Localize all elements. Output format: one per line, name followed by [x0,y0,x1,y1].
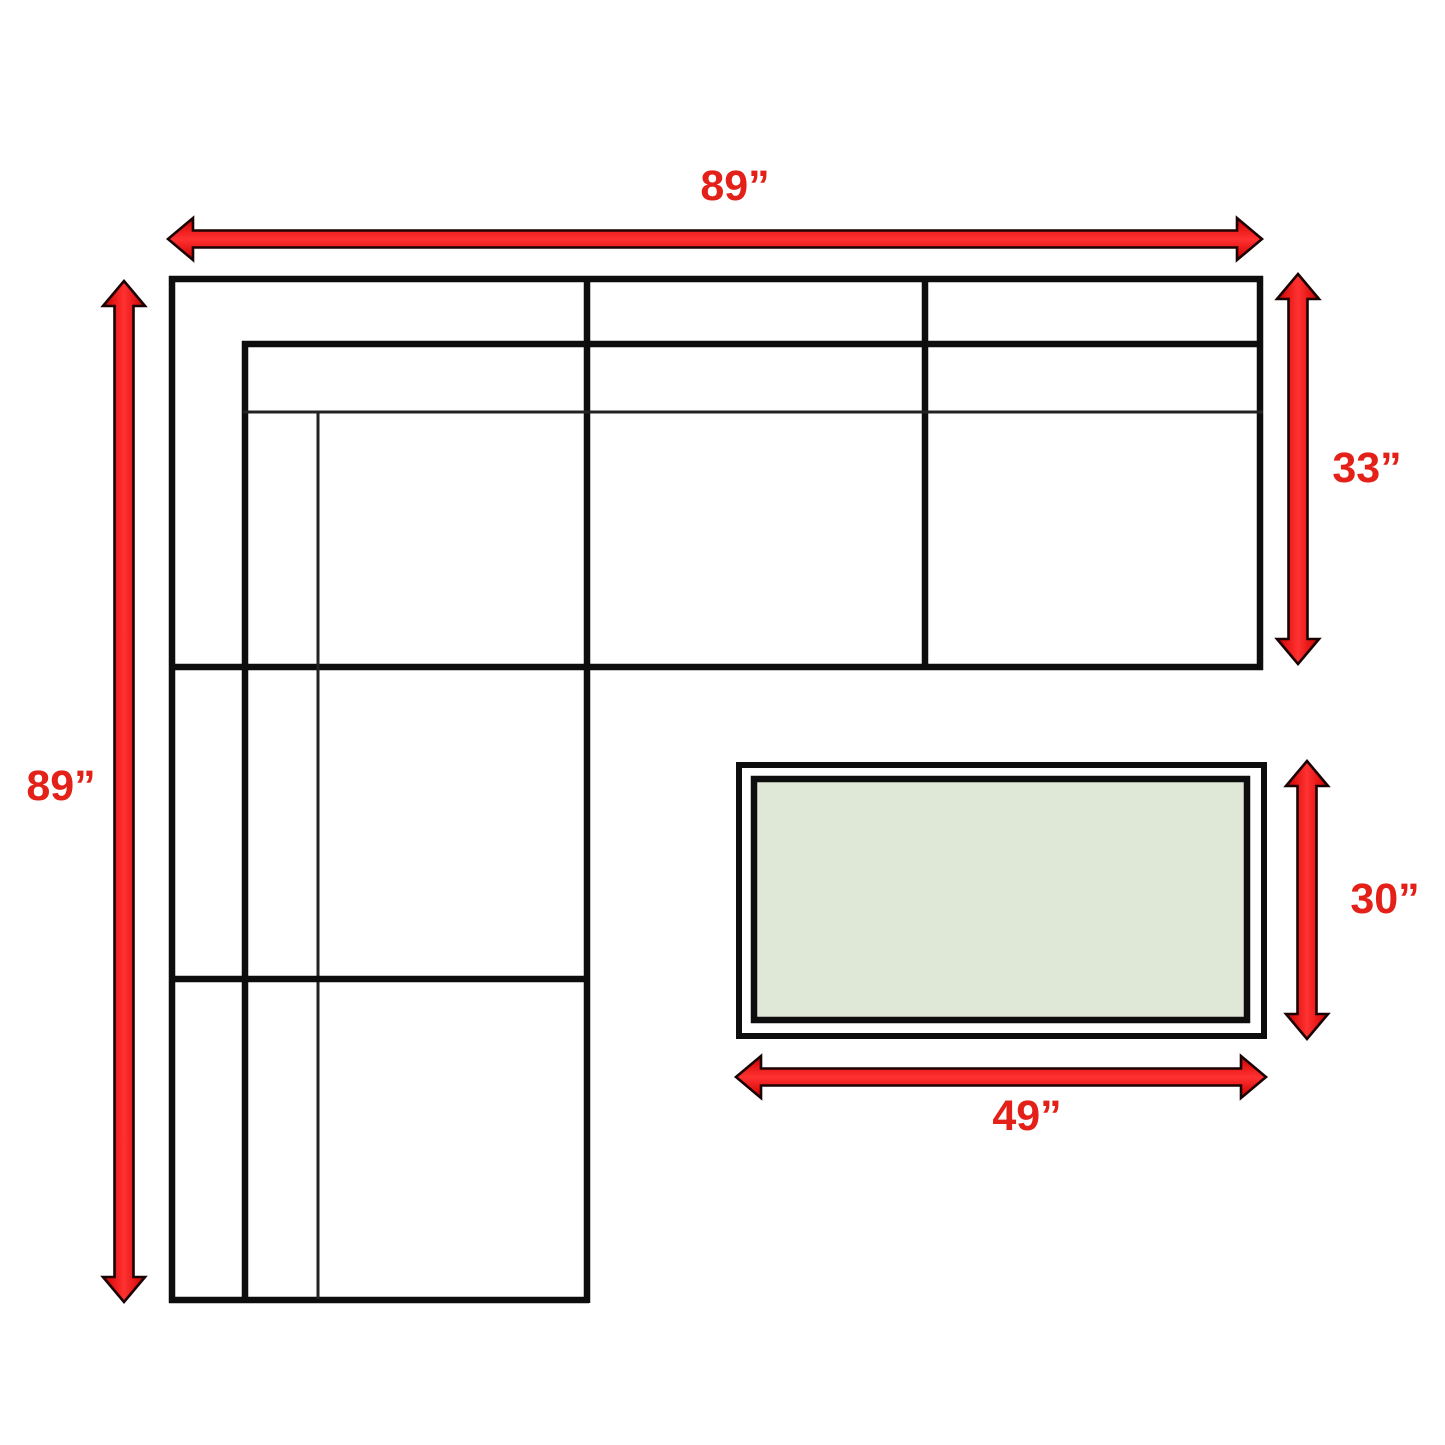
svg-text:89”: 89” [700,162,769,210]
svg-text:33”: 33” [1332,444,1401,492]
svg-text:49”: 49” [992,1092,1061,1140]
svg-text:30”: 30” [1350,875,1419,923]
svg-text:89”: 89” [26,762,95,810]
